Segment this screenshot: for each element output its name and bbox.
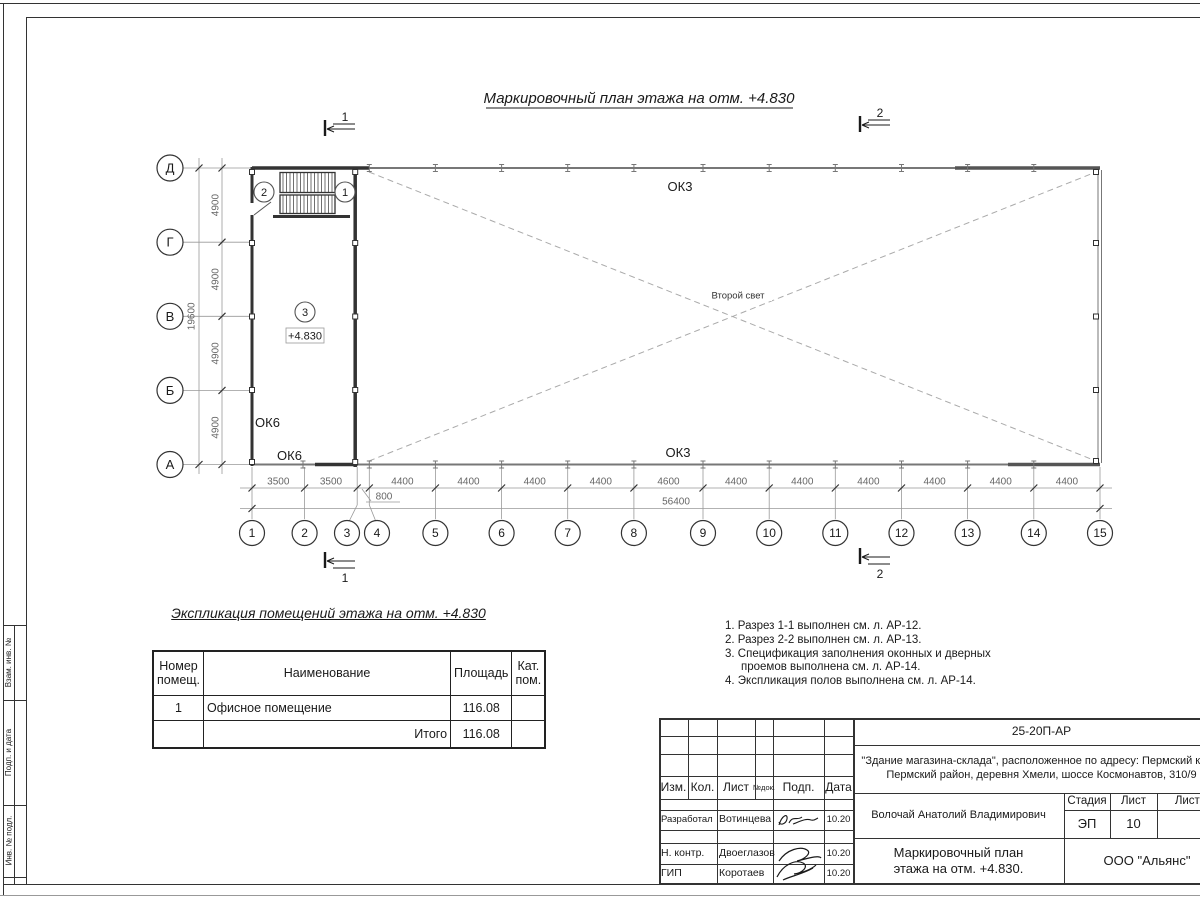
tb-project-line2: Пермский район, деревня Хмели, шоссе Кос… [886,769,1196,783]
svg-text:13: 13 [961,526,975,540]
frame-label-inv: Инв. № подл. [4,805,15,877]
column-markers [250,170,1099,465]
col-header-area: Площадь [451,651,512,695]
svg-text:19600: 19600 [187,302,198,330]
svg-text:1: 1 [342,187,348,199]
svg-text:Второй свет: Второй свет [711,291,765,302]
svg-text:А: А [166,457,175,472]
signature-gip [773,844,823,883]
svg-text:ОК6: ОК6 [277,448,302,463]
svg-text:3: 3 [344,526,351,540]
col-axis-bubbles: 1 2 3 4 5 6 7 8 9 10 11 12 13 14 15 [240,521,1113,546]
room-name-cell: Офисное помещение [204,695,451,720]
tb-col-izm: Изм. [659,776,688,799]
svg-text:56400: 56400 [662,497,690,508]
tb-name-ncontr: Двоеглазов [719,843,773,864]
svg-text:4400: 4400 [590,477,613,488]
svg-text:4400: 4400 [524,477,547,488]
tb-name-developer: Вотинцева [719,810,773,830]
svg-text:3500: 3500 [320,477,343,488]
room-area-cell: 116.08 [451,695,512,720]
table-total-row: Итого 116.08 [153,720,545,748]
row-axis-bubbles: Д Г В Б А [157,155,183,478]
tb-stage-label: Стадия [1064,793,1110,810]
svg-text:2: 2 [301,526,308,540]
section-mark-labels: 1 1 2 2 [342,106,884,585]
svg-text:В: В [166,309,175,324]
svg-text:4: 4 [374,526,381,540]
tb-date-ncontr: 10.20 [824,843,853,864]
room-number-cell: 1 [153,695,204,720]
svg-text:ОК6: ОК6 [255,415,280,430]
svg-text:4900: 4900 [211,268,222,291]
tb-col-list: Лист [717,776,755,799]
svg-text:800: 800 [376,492,393,503]
svg-text:3500: 3500 [267,477,290,488]
floor-plan: Маркировочный план этажа на отм. +4.830 … [0,0,1200,620]
tb-company: ООО "Альянс" [1064,838,1200,884]
dim-lines-bottom [240,467,1112,521]
tb-col-ndoc: №док. [755,776,773,799]
svg-text:2: 2 [877,567,884,581]
title-block: Изм. Кол. Лист №док. Подп. Дата Разработ… [659,718,1200,884]
col-header-number: Номер помещ. [153,651,204,695]
svg-text:4400: 4400 [725,477,748,488]
note-item: 1. Разрез 1-1 выполнен см. л. АР-12. [725,620,1017,634]
svg-text:4400: 4400 [457,477,480,488]
col-header-cat: Кат. пом. [512,651,545,695]
stairs [280,173,335,214]
svg-text:10: 10 [763,526,777,540]
col-header-name: Наименование [204,651,451,695]
tb-project-line1: "Здание магазина-склада", расположенное … [861,755,1200,769]
tb-col-kol: Кол. [688,776,717,799]
tb-col-data: Дата [824,776,853,799]
tb-stage-value: ЭП [1064,810,1110,838]
second-light-label: Второй свет [704,288,772,302]
tb-date-gip: 10.20 [824,864,853,884]
svg-text:2: 2 [877,106,884,120]
svg-text:14: 14 [1027,526,1041,540]
note-item: 3. Спецификация заполнения оконных и две… [725,648,1017,676]
frame-label-vzam: Взам. инв. № [3,625,14,700]
level-mark: +4.830 [286,328,324,343]
svg-text:8: 8 [631,526,638,540]
drawing-sheet: Взам. инв. № Подп. и дата Инв. № подл. М… [0,0,1200,900]
explication-table: Номер помещ. Наименование Площадь Кат. п… [152,650,546,749]
tb-doc-title-line1: Маркировочный план [894,845,1024,861]
notes-list: 1. Разрез 1-1 выполнен см. л. АР-12. 2. … [725,620,1017,689]
tb-role-gip: ГИП [660,864,718,884]
signature-developer [775,812,822,828]
svg-text:1: 1 [249,526,256,540]
tb-role-developer: Разработал [660,810,718,830]
tb-sheet-label: Лист [1110,793,1157,810]
second-light-diagonals [369,172,1096,461]
svg-text:4400: 4400 [990,477,1013,488]
tb-approver: Волочай Анатолий Владимирович [853,793,1064,838]
svg-text:9: 9 [700,526,707,540]
frame-label-podp: Подп. и дата [3,700,14,805]
plan-title: Маркировочный план этажа на отм. +4.830 [484,90,796,107]
svg-text:11: 11 [829,526,842,540]
tb-sheet-value: 10 [1110,810,1157,838]
walls [252,167,1102,467]
svg-text:4600: 4600 [657,477,680,488]
tb-sheets-label: Листов [1157,793,1200,810]
svg-text:Г: Г [166,235,173,250]
svg-text:ОК3: ОК3 [666,445,691,460]
room-cat-cell [512,695,545,720]
tb-doc-title-line2: этажа на отм. +4.830. [894,861,1024,877]
tb-project-name: "Здание магазина-склада", расположенное … [853,745,1200,793]
note-item: 2. Разрез 2-2 выполнен см. л. АР-13. [725,634,1017,648]
svg-text:4400: 4400 [923,477,946,488]
svg-text:4400: 4400 [857,477,880,488]
svg-text:5: 5 [432,526,439,540]
plan-labels: ОК3 ОК3 ОК6 ОК6 [255,179,692,463]
tb-date-developer: 10.20 [824,810,853,830]
tb-sheets-value [1157,810,1200,838]
svg-text:2: 2 [261,187,267,199]
svg-text:4900: 4900 [211,342,222,365]
svg-text:12: 12 [895,526,909,540]
dim-text-bottom: 3500 3500 4400 4400 4400 4400 4600 4400 … [267,477,1078,508]
svg-text:4400: 4400 [1056,477,1079,488]
window-marks [301,165,1037,469]
tb-col-podp: Подп. [773,776,824,799]
tb-doc-title: Маркировочный план этажа на отм. +4.830. [853,838,1064,884]
svg-text:1: 1 [342,571,349,585]
svg-text:1: 1 [342,110,349,124]
svg-text:+4.830: +4.830 [288,331,322,343]
total-area-cell: 116.08 [451,720,512,748]
svg-text:7: 7 [564,526,571,540]
svg-text:Д: Д [166,161,175,176]
tb-role-ncontr: Н. контр. [660,843,718,864]
svg-text:4900: 4900 [211,416,222,439]
svg-text:4900: 4900 [211,194,222,217]
explication-title: Экспликация помещений этажа на отм. +4.8… [152,605,505,621]
tb-name-gip: Коротаев [719,864,773,884]
svg-text:3: 3 [302,307,308,319]
table-row: 1 Офисное помещение 116.08 [153,695,545,720]
svg-text:15: 15 [1093,526,1107,540]
svg-text:6: 6 [498,526,505,540]
note-item: 4. Экспликация полов выполнена см. л. АР… [725,675,1017,689]
svg-text:4400: 4400 [791,477,814,488]
total-label-cell: Итого [204,720,451,748]
section-marks [325,116,890,568]
tb-doc-number: 25-20П-АР [853,718,1200,745]
svg-text:Б: Б [166,383,175,398]
svg-text:ОК3: ОК3 [668,179,693,194]
svg-text:4400: 4400 [391,477,414,488]
